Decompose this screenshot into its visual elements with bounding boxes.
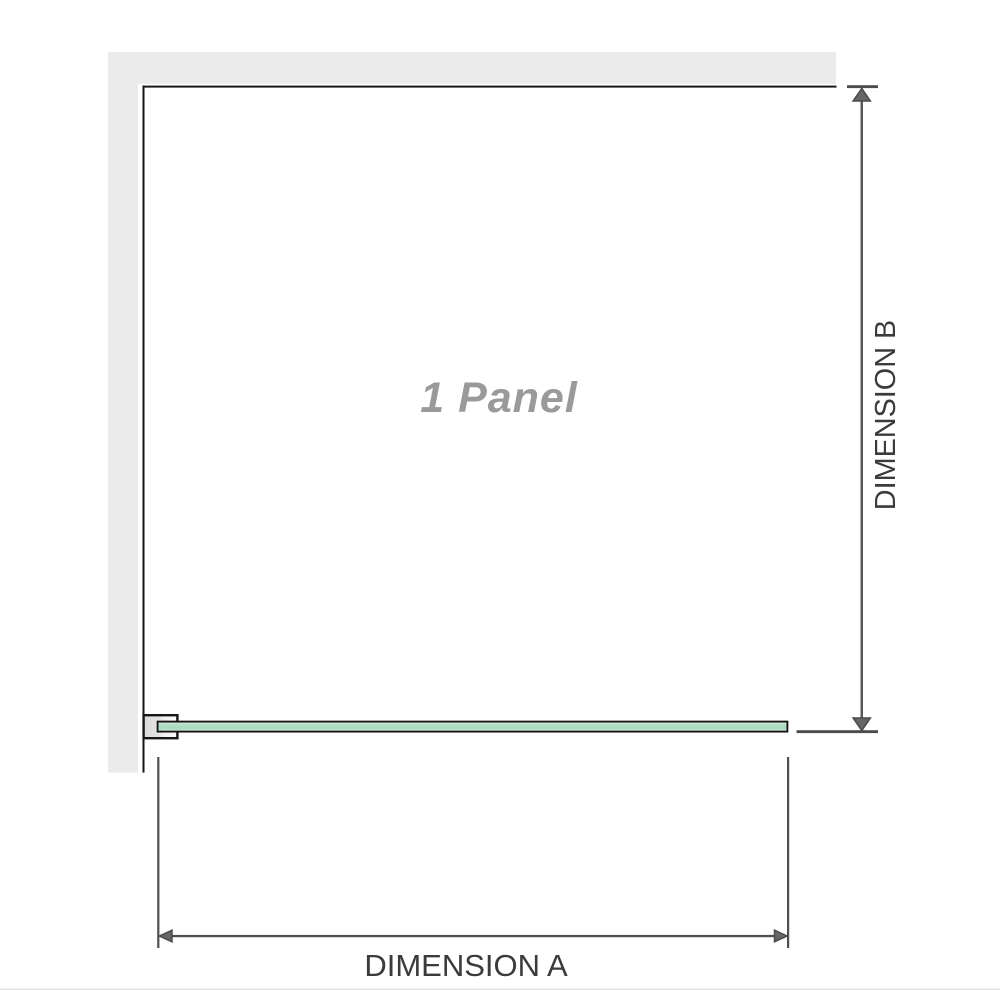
svg-text:DIMENSION A: DIMENSION A [364,948,568,983]
svg-text:DIMENSION B: DIMENSION B [870,320,902,510]
svg-text:1 Panel: 1 Panel [420,374,578,422]
